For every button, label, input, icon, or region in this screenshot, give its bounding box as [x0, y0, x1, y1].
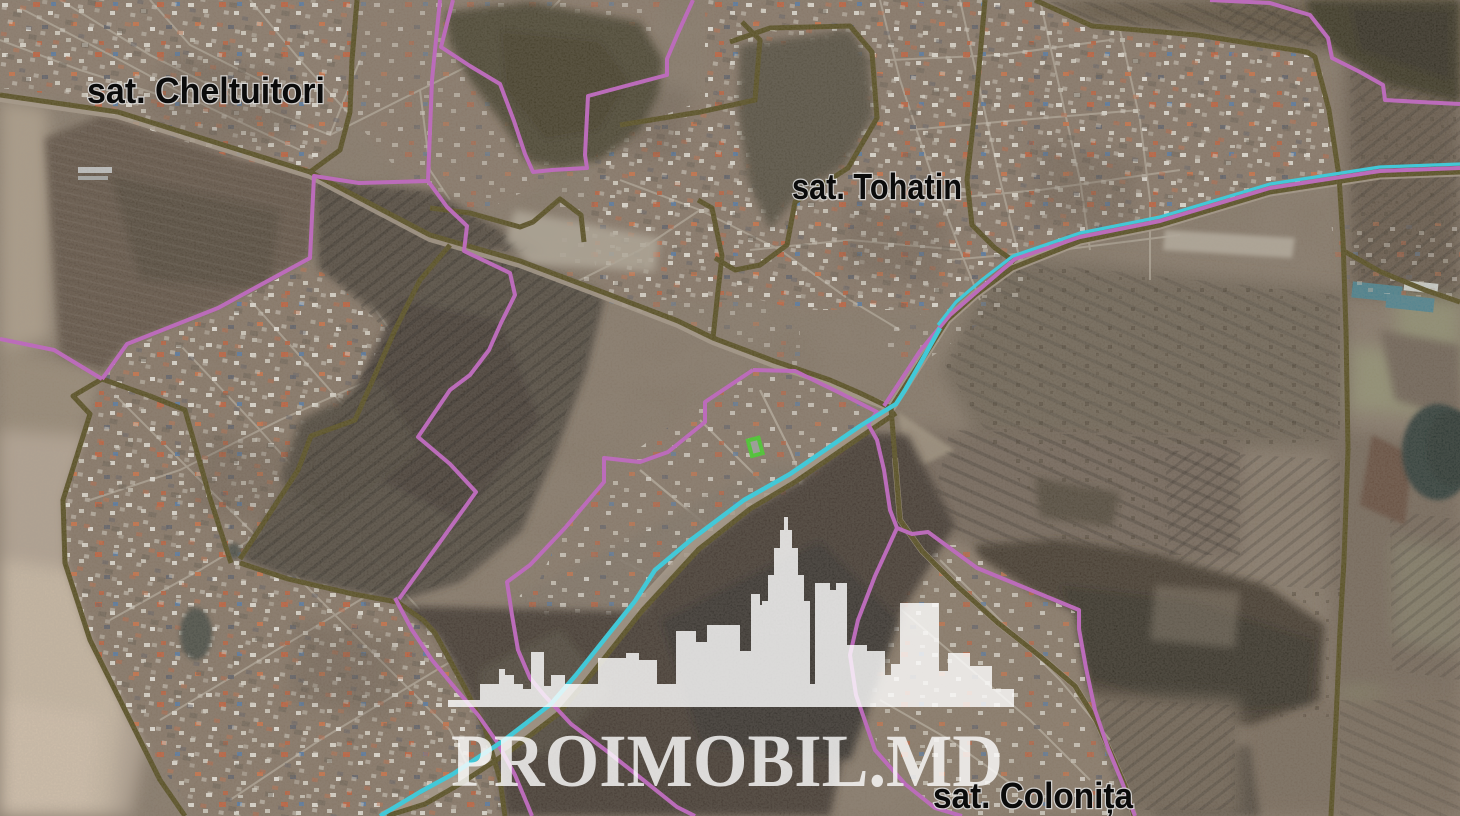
svg-text:sat. Cheltuitori: sat. Cheltuitori — [87, 70, 325, 111]
svg-text:sat. Colonița: sat. Colonița — [933, 775, 1134, 816]
svg-text:sat. Tohatin: sat. Tohatin — [792, 166, 962, 207]
svg-text:PROIMOBIL.MD: PROIMOBIL.MD — [451, 720, 1003, 803]
